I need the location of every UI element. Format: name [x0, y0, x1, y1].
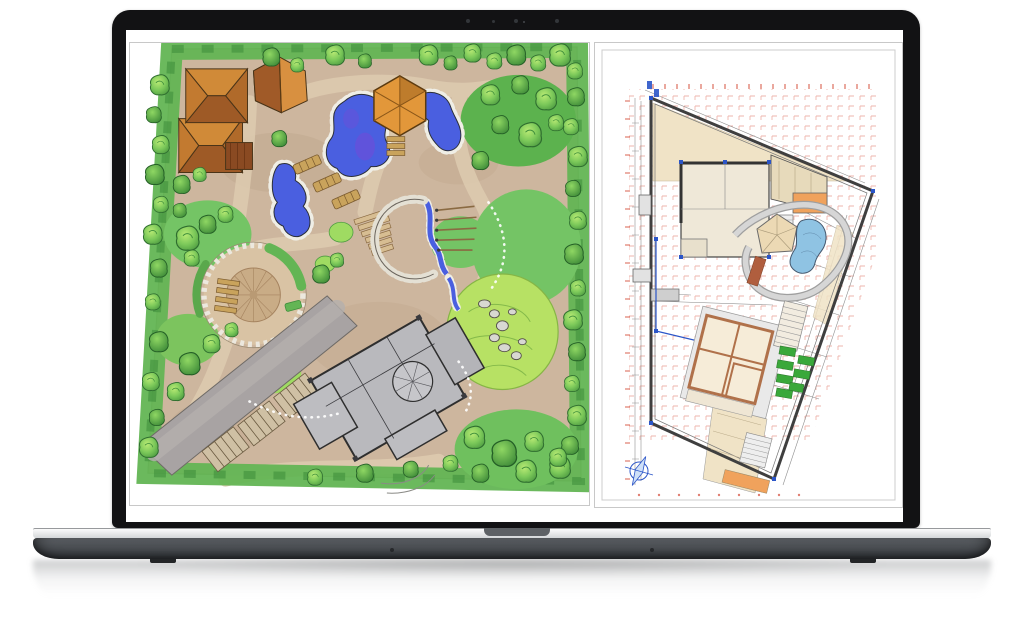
webcam-dot-icon — [466, 19, 470, 23]
webcam-icon — [514, 19, 518, 23]
lid-notch — [484, 528, 550, 536]
webcam-dot-icon — [555, 19, 559, 23]
webcam-dot-icon — [523, 21, 525, 23]
house-roofs — [179, 69, 253, 173]
base-screw-icon — [390, 548, 394, 552]
base-screw-icon — [650, 548, 654, 552]
compass-icon — [625, 455, 653, 487]
webcam-dot-icon — [492, 20, 495, 23]
laptop-base — [33, 538, 991, 559]
cad-plan-image — [594, 42, 903, 508]
masterplan-illustration — [130, 43, 589, 505]
masterplan-image — [129, 42, 590, 506]
cad-plan-drawing — [595, 43, 902, 507]
laptop-mockup — [0, 0, 1024, 621]
